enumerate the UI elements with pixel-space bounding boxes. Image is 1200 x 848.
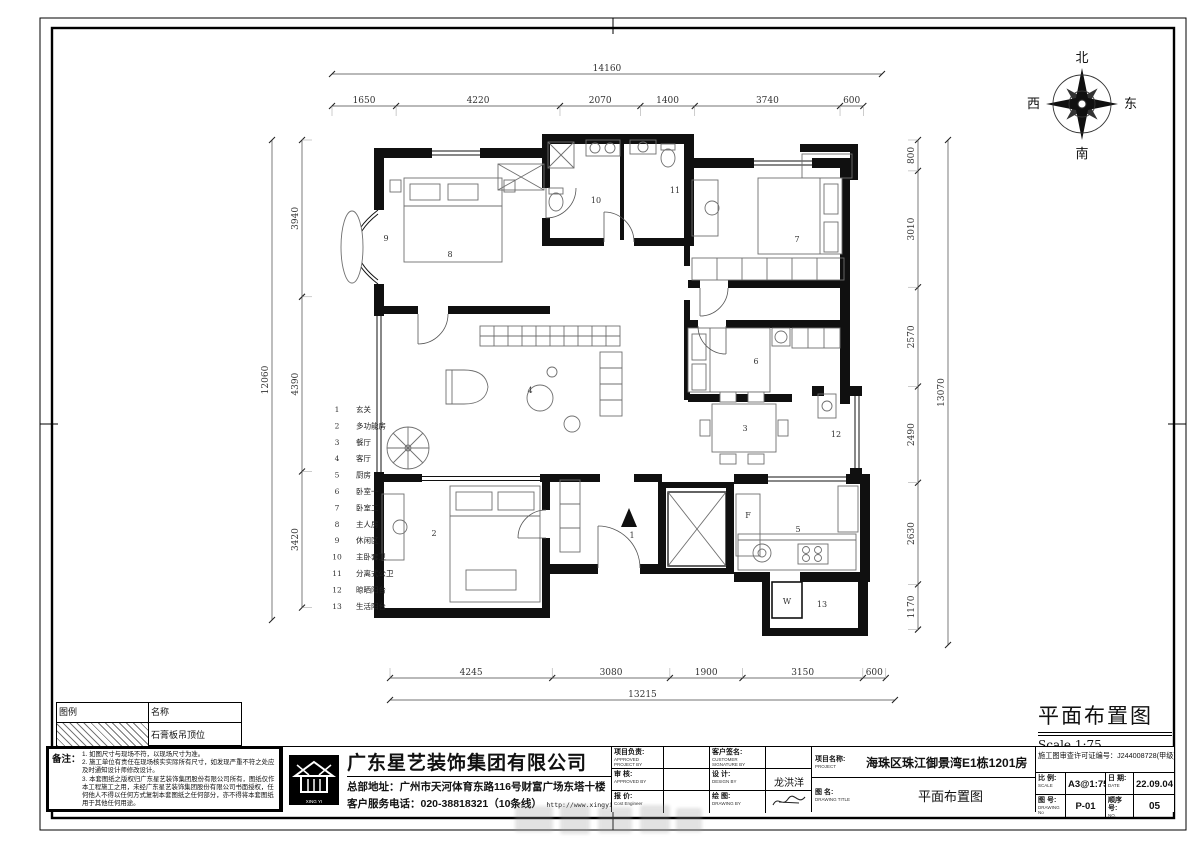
svg-text:1: 1 (629, 531, 634, 540)
svg-text:2070: 2070 (589, 96, 612, 106)
compass: 北 南 西 东 (1027, 51, 1137, 162)
field-design: 设 计: (712, 771, 763, 779)
company-address: 总部地址：广州市天河体育东路116号财富广场东塔十楼 (347, 779, 648, 794)
svg-text:8: 8 (447, 250, 452, 259)
field-drawn-value (766, 791, 812, 813)
svg-text:800: 800 (907, 147, 917, 164)
field-approved: 审 核: (614, 771, 661, 779)
company-block: XING YI 广东星艺装饰集团有限公司 总部地址：广州市天河体育东路116号财… (282, 746, 611, 812)
drawing-no-label: 图 号: (1038, 797, 1063, 805)
company-name: 广东星艺装饰集团有限公司 (347, 748, 648, 777)
svg-text:7: 7 (794, 235, 799, 244)
svg-text:3940: 3940 (291, 207, 301, 230)
svg-text:厨房: 厨房 (356, 470, 371, 480)
svg-text:600: 600 (866, 668, 883, 678)
svg-text:10: 10 (591, 196, 601, 205)
svg-text:8: 8 (335, 520, 340, 529)
legend-header-name: 名称 (149, 703, 241, 722)
drawing-title-label: 图 名: (815, 789, 863, 797)
house-icon (289, 755, 339, 805)
fridge-label: F (745, 511, 751, 520)
svg-text:3420: 3420 (291, 528, 301, 551)
svg-text:7: 7 (335, 503, 340, 512)
svg-text:晾晒阳台: 晾晒阳台 (356, 584, 386, 594)
svg-text:2490: 2490 (907, 423, 917, 446)
svg-text:4: 4 (527, 386, 532, 395)
svg-text:主人房: 主人房 (356, 519, 379, 529)
svg-text:2: 2 (335, 421, 340, 430)
svg-text:3010: 3010 (907, 217, 917, 240)
svg-text:600: 600 (843, 96, 860, 106)
project-block: 项目名称:PROJECT 海珠区珠江御景湾E1栋1201房 图 名:DRAWIN… (811, 746, 1035, 812)
svg-text:分离式公卫: 分离式公卫 (356, 568, 394, 578)
compass-east: 东 (1124, 97, 1137, 112)
seq-no-value: 05 (1134, 795, 1175, 817)
svg-text:4390: 4390 (291, 372, 301, 395)
drawing-sheet: { "sheet": { "title": "平面布置图", "scale_la… (0, 0, 1200, 848)
room-index-list: 1玄关2多功能房3餐厅4客厅5厨房6卧室一7卧室二8主人房9休闲区10主卧套卫1… (332, 404, 394, 611)
svg-text:3150: 3150 (791, 668, 814, 678)
svg-text:13215: 13215 (628, 690, 657, 700)
furniture (341, 140, 858, 618)
project-name: 海珠区珠江御景湾E1栋1201房 (866, 754, 1035, 771)
svg-text:9: 9 (383, 234, 388, 243)
svg-text:3: 3 (335, 438, 340, 447)
svg-text:14160: 14160 (593, 64, 622, 74)
date-label: 日 期: (1108, 775, 1131, 783)
entry-arrow (621, 508, 637, 527)
date-value: 22.09.04 (1134, 773, 1175, 795)
signature-scribble (769, 793, 809, 809)
field-drawn: 绘 图: (712, 793, 763, 801)
field-design-value: 龙洪洋 (766, 769, 812, 791)
svg-text:1: 1 (335, 405, 340, 414)
svg-text:休闲区: 休闲区 (356, 535, 379, 545)
legend-symbol-hatch (57, 723, 149, 746)
svg-text:12060: 12060 (261, 365, 271, 394)
note-line-1: 1. 如图尺寸与现场不符，以现场尺寸为准。 (82, 751, 276, 759)
svg-text:玄关: 玄关 (356, 404, 371, 414)
svg-text:11: 11 (332, 569, 342, 578)
field-customer-signature: 客户签名: (712, 749, 763, 757)
svg-text:13: 13 (817, 600, 827, 609)
svg-text:卧室一: 卧室一 (356, 486, 379, 496)
field-cost: 报 价: (614, 793, 661, 801)
note-line-2: 2. 施工单位有责任在现场核实实际所有尺寸，如发现严重不符之处应及时通知设计师修… (82, 759, 276, 775)
scale-value: A3@1:75 (1066, 773, 1106, 795)
svg-text:4220: 4220 (467, 96, 490, 106)
legend-row-name: 石膏板吊顶位 (149, 723, 241, 746)
field-approved-value (664, 769, 710, 791)
svg-text:3740: 3740 (756, 96, 779, 106)
compass-north: 北 (1075, 51, 1088, 66)
svg-text:1400: 1400 (656, 96, 679, 106)
note-line-3: 3. 本套图纸之版权归广东星艺装饰集团股份有限公司所有，图纸仅作本工程施工之用，… (82, 776, 276, 809)
approval-grid: 项目负责:APPROVED PROJECT BY 客户签名:CUSTOMER S… (611, 746, 811, 812)
company-phone: 客户服务电话：020-38818321（10条线） (347, 798, 542, 810)
svg-text:多功能房: 多功能房 (356, 420, 386, 430)
legend-header-symbol: 图例 (57, 703, 149, 722)
svg-text:13: 13 (332, 602, 342, 611)
svg-text:1170: 1170 (907, 595, 917, 618)
permit-block: 施工图审查许可证编号：J244008728(甲级) 比 例:SCALE A3@1… (1035, 746, 1174, 812)
page-title: 平面布置图 (1038, 700, 1172, 736)
logo-caption: XING YI (289, 799, 339, 804)
svg-text:12: 12 (332, 585, 342, 594)
svg-text:卧室二: 卧室二 (356, 502, 379, 512)
svg-text:3: 3 (742, 424, 747, 433)
svg-text:2: 2 (431, 529, 436, 538)
svg-text:餐厅: 餐厅 (356, 438, 371, 447)
svg-text:1650: 1650 (353, 96, 376, 106)
svg-text:1900: 1900 (695, 668, 718, 678)
field-project-lead: 项目负责: (614, 749, 661, 757)
drawing-title-value: 平面布置图 (866, 786, 1035, 805)
svg-text:9: 9 (335, 536, 340, 545)
compass-west: 西 (1027, 97, 1040, 112)
svg-text:4245: 4245 (460, 668, 483, 678)
svg-text:12: 12 (831, 430, 841, 439)
seq-no-label: 顺序号: (1108, 797, 1131, 813)
svg-text:6: 6 (335, 487, 340, 496)
washer-label: W (783, 597, 792, 606)
legend-table: 图例 名称 石膏板吊顶位 (56, 702, 242, 746)
company-logo: XING YI (289, 755, 339, 805)
svg-text:11: 11 (670, 186, 680, 195)
permit-number: 施工图审查许可证编号：J244008728(甲级) (1036, 747, 1174, 773)
compass-south: 南 (1075, 146, 1088, 162)
svg-text:客厅: 客厅 (356, 453, 371, 463)
svg-text:2570: 2570 (907, 325, 917, 348)
svg-text:10: 10 (332, 553, 342, 562)
drawing-no-value: P-01 (1066, 795, 1106, 817)
svg-text:6: 6 (753, 357, 758, 366)
svg-text:生活阳台: 生活阳台 (356, 601, 386, 611)
svg-text:13070: 13070 (937, 378, 947, 407)
svg-text:5: 5 (335, 471, 340, 480)
notes-label: 备注： (52, 751, 81, 765)
svg-text:3080: 3080 (600, 668, 623, 678)
field-project-lead-value (664, 747, 710, 769)
project-label: 项目名称: (815, 756, 863, 764)
field-customer-signature-value (766, 747, 812, 769)
svg-text:2630: 2630 (907, 522, 917, 545)
svg-text:4: 4 (335, 454, 340, 463)
svg-text:主卧套卫: 主卧套卫 (356, 552, 386, 562)
scale-label: 比 例: (1038, 775, 1063, 783)
notes-box: 备注： 1. 如图尺寸与现场不符，以现场尺寸为准。 2. 施工单位有责任在现场核… (46, 746, 282, 812)
svg-text:5: 5 (795, 525, 800, 534)
